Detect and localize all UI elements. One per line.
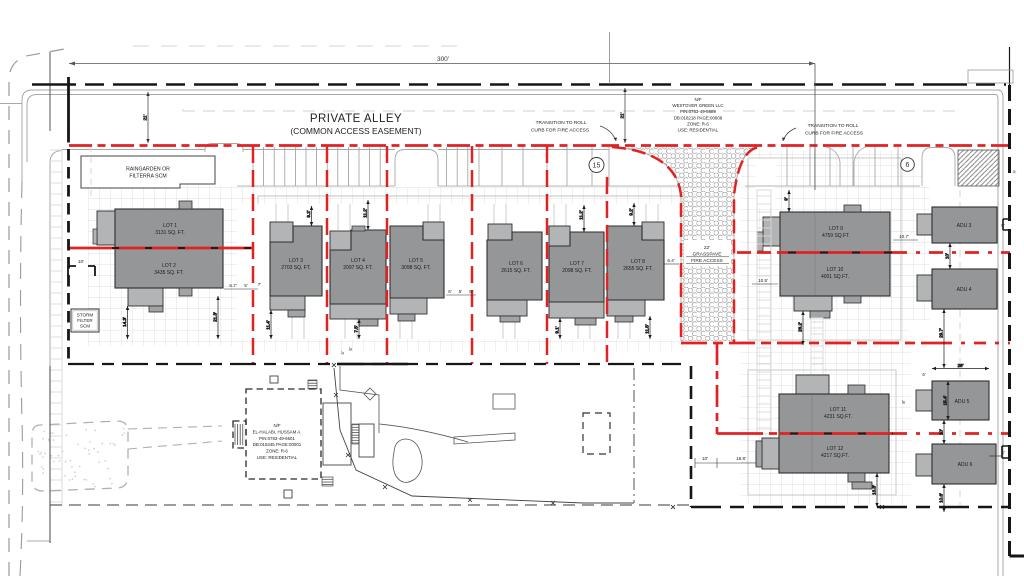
svg-text:EL-HALABI, HUSSAM A.: EL-HALABI, HUSSAM A. (253, 429, 302, 434)
svg-text:21.3': 21.3' (213, 312, 218, 322)
svg-text:DB:015345 PAGE:00001: DB:015345 PAGE:00001 (253, 442, 302, 447)
svg-text:DB:018218 PAGE:00608: DB:018218 PAGE:00608 (674, 115, 723, 120)
svg-text:LOT 4: LOT 4 (351, 258, 365, 264)
svg-text:LOT 8: LOT 8 (631, 259, 645, 265)
svg-text:N/F: N/F (273, 423, 280, 428)
svg-text:PIN:0783-49-6601: PIN:0783-49-6601 (259, 436, 295, 441)
svg-text:FILTER: FILTER (77, 318, 93, 323)
svg-text:6': 6' (922, 372, 925, 377)
svg-text:2703 SQ. FT.: 2703 SQ. FT. (281, 265, 310, 271)
svg-text:10': 10' (939, 429, 944, 435)
svg-text:ADU 4: ADU 4 (957, 287, 972, 293)
svg-text:ADU 5: ADU 5 (955, 399, 970, 405)
svg-text:21': 21' (143, 114, 148, 120)
svg-text:LOT 9: LOT 9 (829, 226, 843, 232)
svg-text:LOT 1: LOT 1 (163, 223, 177, 229)
svg-text:3098 SQ. FT.: 3098 SQ. FT. (401, 265, 430, 271)
svg-text:11.4': 11.4' (266, 320, 271, 330)
svg-text:CURB FOR FIRE ACCESS: CURB FOR FIRE ACCESS (805, 131, 863, 137)
svg-text:5': 5' (348, 347, 353, 350)
svg-text:(COMMON ACCESS EASEMENT): (COMMON ACCESS EASEMENT) (290, 126, 421, 136)
svg-text:PRIVATE ALLEY: PRIVATE ALLEY (310, 113, 402, 125)
svg-text:9.2': 9.2' (629, 208, 634, 215)
svg-text:USE: RESIDENTIAL: USE: RESIDENTIAL (257, 455, 298, 460)
svg-text:6: 6 (906, 162, 910, 169)
svg-text:4217 SQ.FT.: 4217 SQ.FT. (821, 453, 849, 459)
svg-text:STORM: STORM (77, 313, 94, 318)
svg-text:5': 5' (459, 289, 463, 294)
svg-text:5': 5' (244, 283, 248, 288)
svg-text:10.7': 10.7' (899, 234, 909, 239)
svg-text:6': 6' (448, 289, 452, 294)
svg-text:LOT 12: LOT 12 (827, 446, 844, 452)
svg-text:ZONE: R-6: ZONE: R-6 (266, 449, 288, 454)
svg-text:LOT 7: LOT 7 (570, 261, 584, 267)
svg-text:10': 10' (945, 253, 950, 259)
svg-text:15: 15 (593, 163, 601, 170)
svg-text:10': 10' (78, 259, 84, 265)
svg-text:FIRE ACCESS: FIRE ACCESS (691, 258, 723, 264)
svg-text:26': 26' (958, 363, 964, 368)
svg-text:11.2': 11.2' (579, 210, 584, 220)
svg-text:11.2': 11.2' (363, 208, 368, 218)
svg-text:15.4': 15.4' (943, 395, 948, 405)
svg-text:ADU 3: ADU 3 (957, 223, 972, 229)
svg-text:10.5': 10.5' (758, 278, 768, 283)
svg-text:26.2': 26.2' (798, 322, 803, 332)
svg-text:WESTOVER GREEN LLC: WESTOVER GREEN LLC (672, 103, 723, 108)
svg-text:21': 21' (620, 112, 625, 118)
svg-text:10.6': 10.6' (939, 493, 944, 503)
svg-text:11.5': 11.5' (645, 324, 650, 334)
svg-text:LOT 6: LOT 6 (509, 261, 523, 267)
svg-text:18.8': 18.8' (736, 456, 746, 461)
svg-text:FILTERRA SCM: FILTERRA SCM (129, 174, 166, 180)
svg-text:9.1': 9.1' (555, 326, 560, 333)
svg-text:7.5': 7.5' (354, 325, 359, 332)
svg-text:6.4': 6.4' (667, 258, 674, 263)
svg-text:2098 SQ. FT.: 2098 SQ. FT. (562, 268, 591, 274)
svg-text:22': 22' (704, 245, 710, 251)
svg-text:3435 SQ. FT.: 3435 SQ. FT. (154, 270, 183, 276)
svg-text:2655 SQ. FT.: 2655 SQ. FT. (623, 266, 652, 272)
svg-text:4231 SQ.FT.: 4231 SQ.FT. (824, 414, 852, 420)
svg-text:LOT 2: LOT 2 (162, 263, 176, 269)
svg-text:7': 7' (258, 282, 262, 287)
svg-text:RAINGARDEN OR: RAINGARDEN OR (126, 167, 170, 173)
svg-text:LOT 11: LOT 11 (830, 407, 846, 413)
svg-text:USE: RESIDENTIAL: USE: RESIDENTIAL (678, 128, 719, 133)
svg-text:9': 9' (784, 197, 789, 201)
svg-text:300': 300' (437, 56, 449, 63)
svg-text:9.2': 9.2' (306, 210, 311, 217)
svg-text:TRANSITION TO ROLL: TRANSITION TO ROLL (536, 120, 587, 126)
svg-text:PIN:0783-49-5689: PIN:0783-49-5689 (680, 109, 716, 114)
svg-text:5': 5' (1001, 450, 1005, 455)
svg-text:ADU 6: ADU 6 (958, 462, 973, 468)
svg-text:CURB FOR FIRE ACCESS: CURB FOR FIRE ACCESS (531, 128, 589, 134)
svg-text:2097 SQ. FT.: 2097 SQ. FT. (343, 265, 372, 271)
svg-text:13.8': 13.8' (872, 485, 877, 495)
svg-text:8': 8' (901, 400, 906, 403)
svg-text:ZONE: R-6: ZONE: R-6 (687, 121, 709, 126)
svg-text:3131 SQ. FT.: 3131 SQ. FT. (155, 230, 184, 236)
svg-text:5': 5' (1001, 223, 1005, 228)
svg-text:4001 SQ.FT.: 4001 SQ.FT. (821, 274, 849, 280)
svg-text:2615 SQ. FT.: 2615 SQ. FT. (501, 268, 530, 274)
svg-text:SCM: SCM (80, 324, 90, 329)
svg-text:6.7': 6.7' (229, 283, 236, 288)
svg-text:10': 10' (702, 456, 708, 461)
svg-text:6': 6' (469, 289, 473, 294)
svg-text:LOT 5: LOT 5 (409, 258, 423, 264)
svg-text:29.7': 29.7' (939, 328, 944, 338)
svg-text:14.3': 14.3' (122, 317, 127, 327)
svg-text:4759 SQ.FT.: 4759 SQ.FT. (822, 233, 850, 239)
svg-text:N/F: N/F (694, 97, 701, 102)
svg-text:LOT 10: LOT 10 (827, 267, 844, 273)
svg-text:TRANSITION TO ROLL: TRANSITION TO ROLL (808, 123, 859, 129)
svg-text:LOT 3: LOT 3 (289, 258, 303, 264)
svg-text:4': 4' (340, 351, 345, 354)
